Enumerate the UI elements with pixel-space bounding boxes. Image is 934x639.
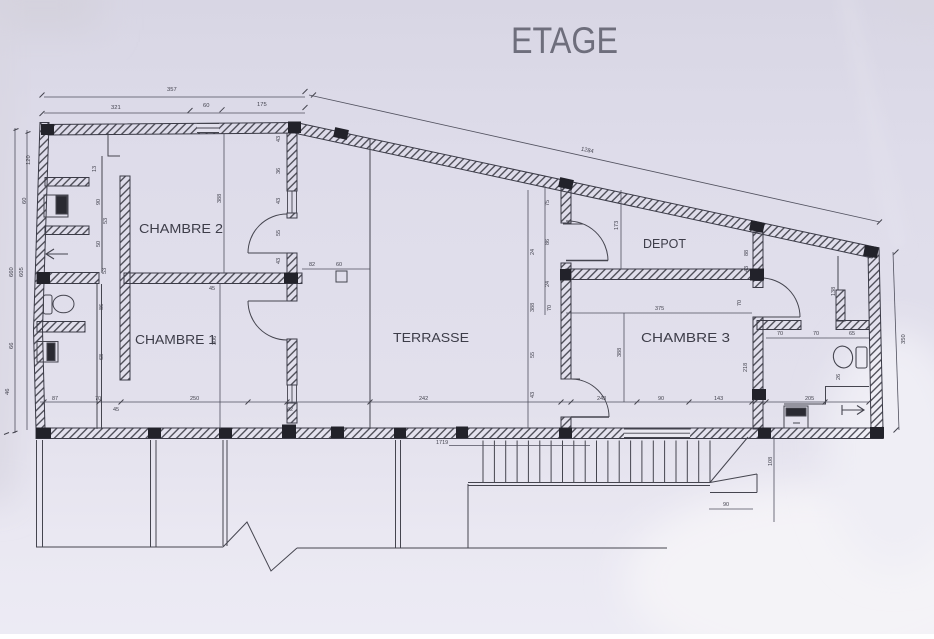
svg-text:60: 60 <box>203 103 209 109</box>
svg-text:82: 82 <box>309 262 315 268</box>
svg-text:388: 388 <box>217 194 223 203</box>
svg-text:70: 70 <box>777 331 783 337</box>
svg-text:86: 86 <box>99 304 105 310</box>
svg-text:108: 108 <box>768 457 774 466</box>
svg-text:357: 357 <box>167 87 177 93</box>
svg-text:60: 60 <box>336 262 342 268</box>
svg-text:86: 86 <box>545 239 551 245</box>
svg-text:DEPOT: DEPOT <box>643 237 686 251</box>
svg-text:90: 90 <box>96 199 102 205</box>
svg-text:218: 218 <box>743 363 749 372</box>
svg-text:1719: 1719 <box>436 440 448 446</box>
svg-text:CHAMBRE 2: CHAMBRE 2 <box>139 221 223 236</box>
svg-text:46: 46 <box>5 389 11 395</box>
svg-text:55: 55 <box>276 230 282 236</box>
svg-text:43: 43 <box>530 392 536 398</box>
svg-text:350: 350 <box>901 334 907 344</box>
svg-text:53: 53 <box>102 268 108 274</box>
svg-text:375: 375 <box>655 306 664 312</box>
svg-text:26: 26 <box>836 374 842 380</box>
svg-text:243: 243 <box>597 396 606 402</box>
svg-text:70: 70 <box>547 305 553 311</box>
svg-text:45: 45 <box>209 286 215 292</box>
svg-text:36: 36 <box>276 168 282 174</box>
svg-text:ETAGE: ETAGE <box>511 20 618 61</box>
svg-text:70: 70 <box>813 331 819 337</box>
svg-text:70: 70 <box>737 300 743 306</box>
svg-text:68: 68 <box>99 354 105 360</box>
svg-text:CHAMBRE 3: CHAMBRE 3 <box>641 330 730 345</box>
svg-text:TERRASSE: TERRASSE <box>393 330 469 345</box>
svg-text:90: 90 <box>658 396 664 402</box>
svg-text:388: 388 <box>617 348 623 357</box>
svg-text:205: 205 <box>805 396 814 402</box>
svg-text:250: 250 <box>190 396 199 402</box>
svg-text:13: 13 <box>92 166 98 172</box>
svg-text:90: 90 <box>723 502 729 508</box>
svg-text:43: 43 <box>276 198 282 204</box>
svg-text:87: 87 <box>52 396 58 402</box>
svg-text:CHAMBRE 1: CHAMBRE 1 <box>135 332 216 347</box>
svg-text:120: 120 <box>26 155 32 165</box>
svg-text:388: 388 <box>530 303 536 312</box>
svg-text:43: 43 <box>276 258 282 264</box>
svg-text:88: 88 <box>744 250 750 256</box>
svg-text:24: 24 <box>530 249 536 255</box>
svg-text:60: 60 <box>22 198 28 204</box>
svg-text:42: 42 <box>287 407 293 413</box>
svg-text:55: 55 <box>530 352 536 358</box>
svg-text:53: 53 <box>103 218 109 224</box>
svg-text:50: 50 <box>96 241 102 247</box>
svg-text:175: 175 <box>257 102 267 108</box>
svg-text:173: 173 <box>614 221 620 230</box>
svg-text:70: 70 <box>95 396 101 402</box>
svg-text:24: 24 <box>545 281 551 287</box>
svg-text:45: 45 <box>113 407 119 413</box>
svg-text:306: 306 <box>212 336 218 345</box>
svg-text:43: 43 <box>744 266 750 272</box>
svg-text:660: 660 <box>9 267 15 277</box>
svg-text:143: 143 <box>714 396 723 402</box>
svg-text:138: 138 <box>831 287 837 296</box>
svg-text:65: 65 <box>849 331 855 337</box>
svg-text:43: 43 <box>276 136 282 142</box>
svg-text:321: 321 <box>111 105 121 111</box>
svg-text:242: 242 <box>419 396 428 402</box>
svg-text:605: 605 <box>19 267 25 277</box>
svg-text:66: 66 <box>9 343 15 349</box>
svg-text:75: 75 <box>545 200 551 206</box>
